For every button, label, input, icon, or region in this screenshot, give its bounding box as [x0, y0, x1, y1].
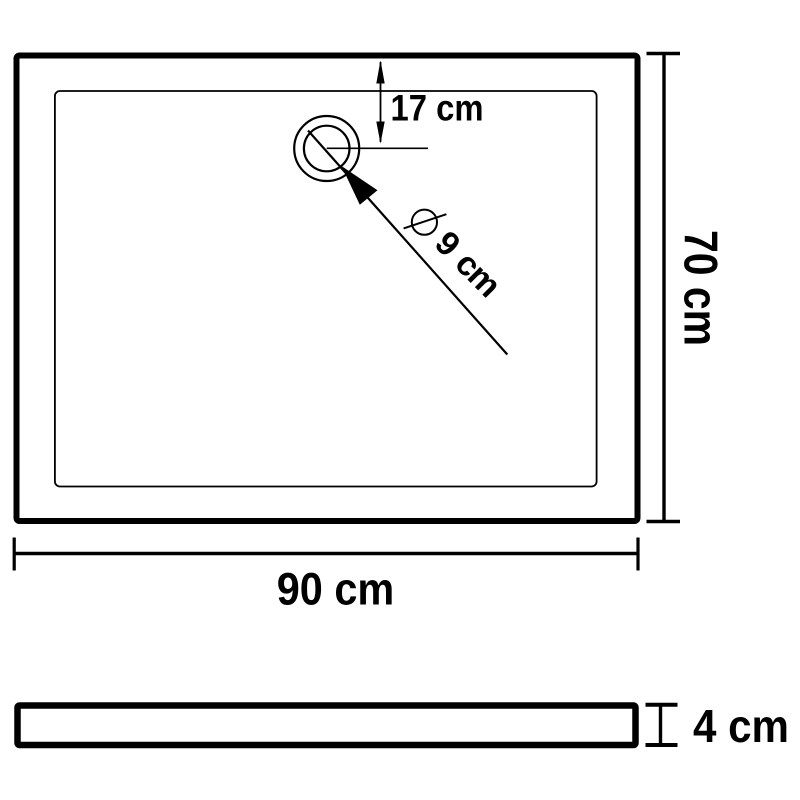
svg-text:70 cm: 70 cm [675, 230, 728, 346]
svg-text:4 cm: 4 cm [693, 700, 789, 752]
svg-text:17 cm: 17 cm [391, 88, 484, 129]
svg-text:90 cm: 90 cm [277, 564, 395, 615]
